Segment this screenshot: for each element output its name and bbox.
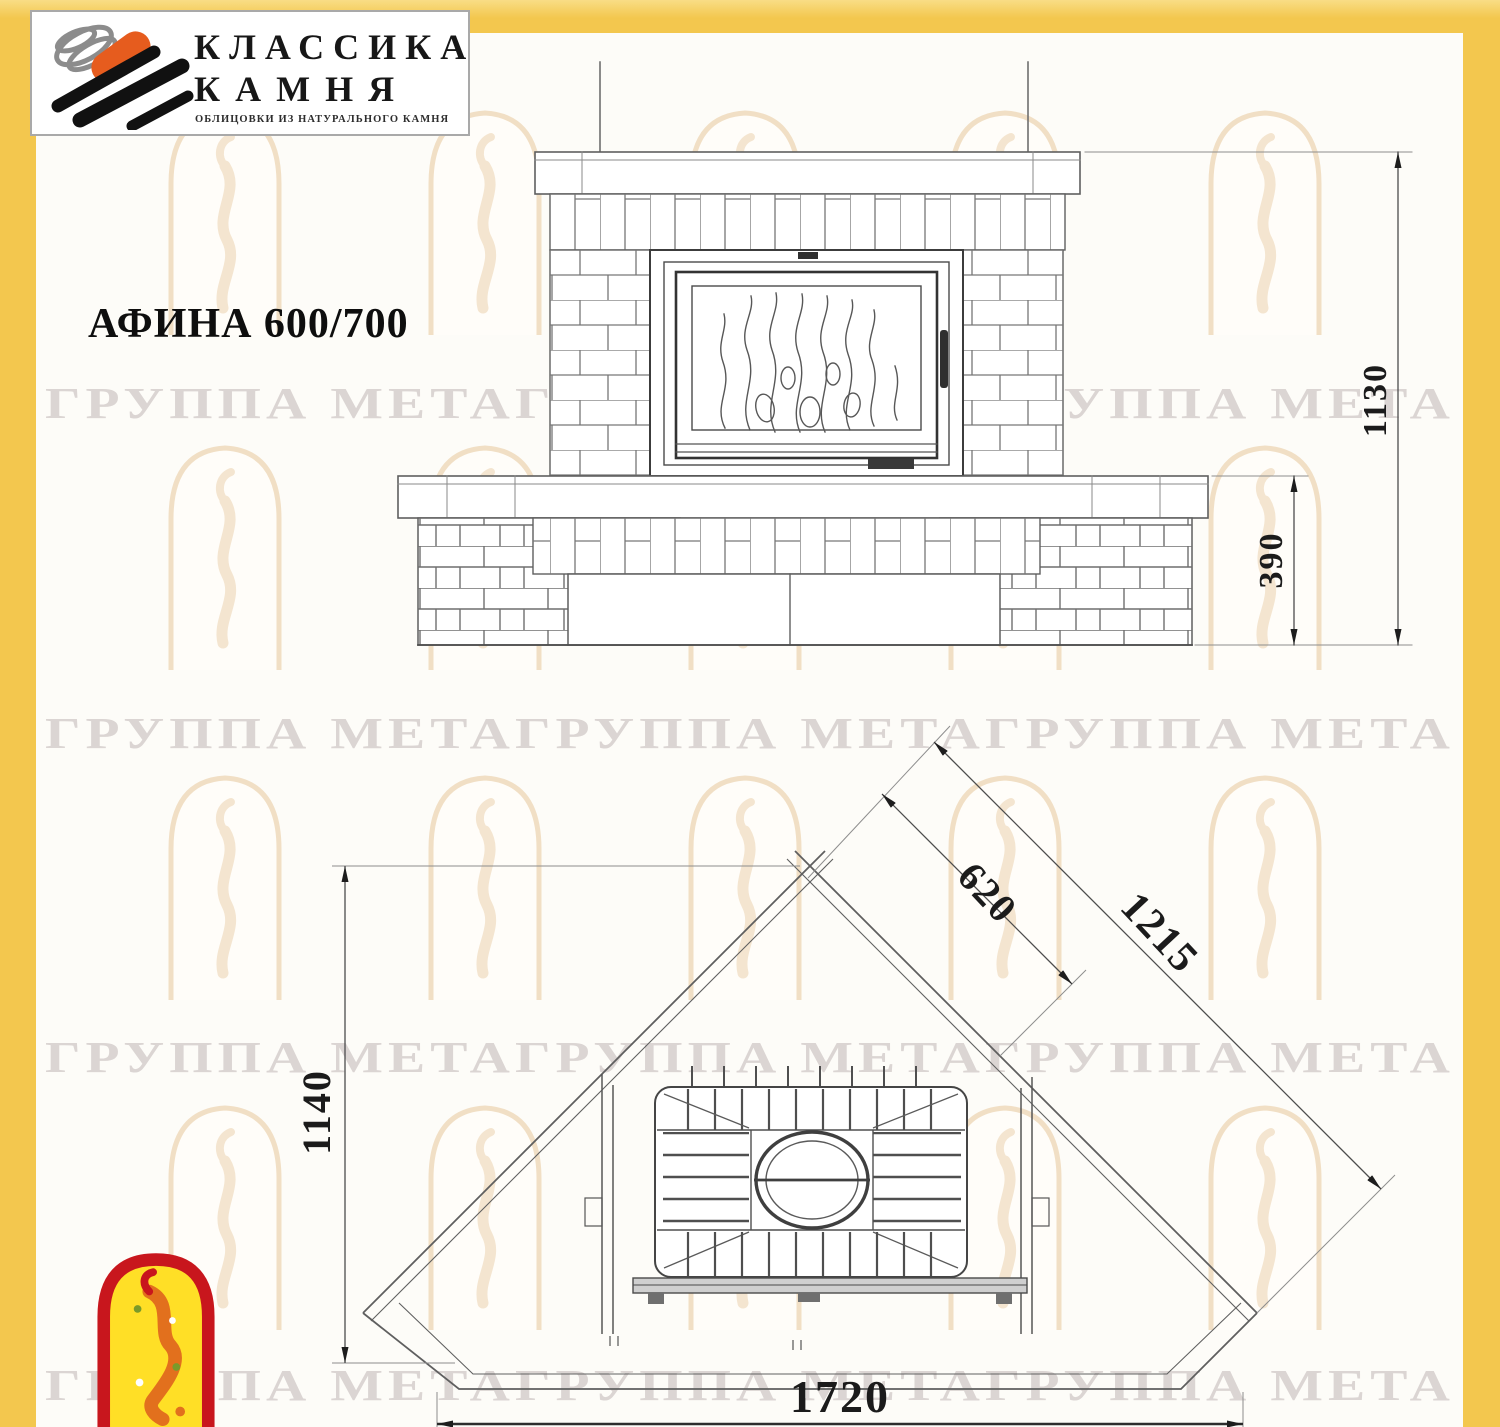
firebird-arch-icon (95, 1247, 217, 1427)
dim-label-390: 390 (1253, 532, 1290, 589)
brand-tagline: ОБЛИЦОВКИ ИЗ НАТУРАЛЬНОГО КАМНЯ (195, 114, 449, 125)
dimension-620: 620 (808, 726, 1086, 1056)
dim-label-1720: 1720 (790, 1371, 890, 1422)
plan-view: 1140 620 1215 1720 (294, 726, 1395, 1427)
chimney-lines (600, 62, 1028, 152)
front-view: 1130 390 (398, 62, 1412, 645)
dimension-1720: 1720 (437, 1371, 1243, 1427)
firebox (650, 250, 963, 476)
firebird-badge (95, 1247, 217, 1427)
dim-label-620: 620 (949, 853, 1027, 932)
frame-right (1463, 0, 1500, 1427)
dimension-1215: 1215 (934, 742, 1395, 1313)
brand-name-line1: КЛАССИКА (194, 26, 475, 68)
wood-niche (568, 574, 1000, 645)
page: ГРУППА МЕТАГРУППА МЕТАГРУППА МЕТА ГРУППА… (0, 0, 1500, 1427)
technical-drawing: 1130 390 (0, 0, 1500, 1427)
dim-label-1130: 1130 (1357, 363, 1394, 437)
base (418, 518, 1192, 645)
mantel-shelf (535, 152, 1080, 194)
hearth-shelf (398, 476, 1208, 518)
frame-left (0, 0, 36, 1427)
model-title: АФИНА 600/700 (88, 300, 409, 348)
insert-top-view (633, 1066, 1027, 1304)
stone-logo-icon (36, 14, 194, 130)
latch (798, 252, 818, 259)
dimension-390: 390 (1212, 476, 1308, 645)
brand-plate (868, 459, 914, 469)
company-logo: КЛАССИКА КАМНЯ ОБЛИЦОВКИ ИЗ НАТУРАЛЬНОГО… (30, 10, 470, 136)
dim-label-1140: 1140 (294, 1069, 339, 1155)
door-handle (940, 330, 948, 388)
brand-name-line2: КАМНЯ (194, 68, 409, 110)
